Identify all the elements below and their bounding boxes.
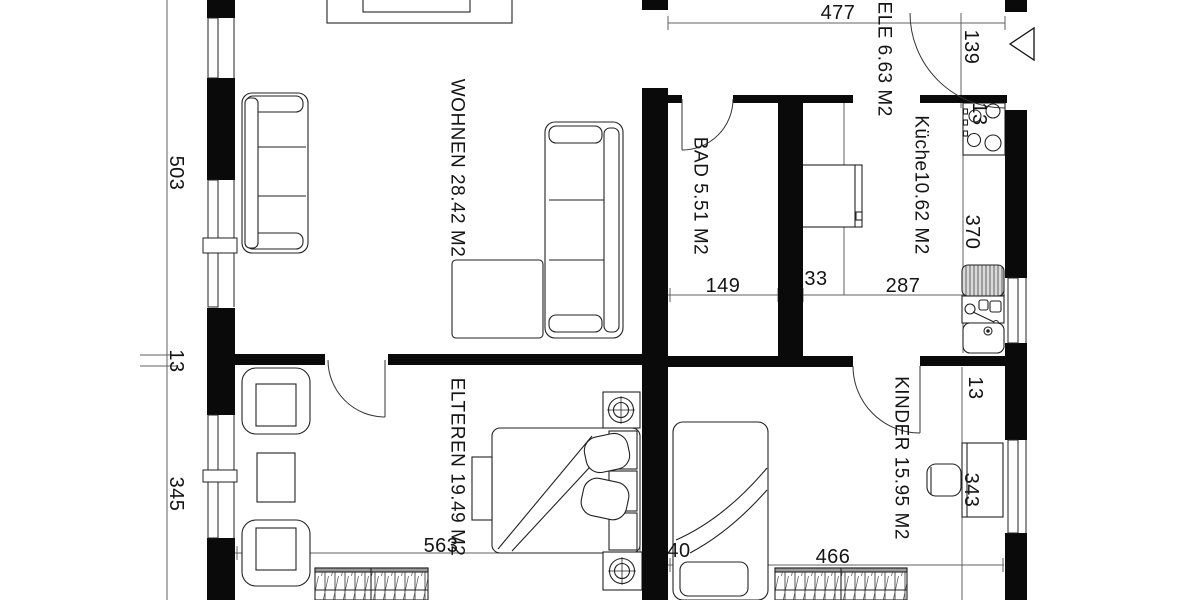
armchair-bottom xyxy=(242,520,310,586)
dim-kinder-depth: 343 xyxy=(961,473,981,508)
wall-left-1 xyxy=(207,0,235,18)
armchair-top xyxy=(242,368,310,434)
dim-left-upper: 503 xyxy=(166,156,186,191)
window-mullion-2 xyxy=(203,470,237,482)
nightstand-top xyxy=(603,392,640,428)
room-label-diele: DELE 6.63 M2 xyxy=(875,0,894,117)
window-right-kinder xyxy=(1008,440,1026,533)
coffee-table xyxy=(452,260,543,338)
wall-hall xyxy=(642,88,668,600)
dim-kinder-width: 466 xyxy=(816,547,851,567)
dim-elteren-width: 563 xyxy=(424,536,459,556)
wall-left-2 xyxy=(207,78,235,180)
wall-right-1 xyxy=(1005,0,1027,12)
nightstand-bottom xyxy=(603,552,642,590)
wall-left-4 xyxy=(207,538,235,600)
window-right-kueche xyxy=(1008,278,1026,343)
dim-kueche-depth: 370 xyxy=(962,215,982,250)
dim-entry-opening: 139 xyxy=(961,30,981,65)
kitchen-sink xyxy=(962,265,1004,353)
dim-left-wall: 13 xyxy=(166,349,186,372)
dim-kueche-width: 287 xyxy=(886,276,921,296)
dim-stove-width: 13 xyxy=(969,102,989,125)
sofa-right xyxy=(545,122,623,338)
dim-door-wall: 40 xyxy=(667,541,690,561)
wall-mid-3 xyxy=(668,356,853,367)
wardrobe-elteren xyxy=(315,568,428,600)
dim-bad-wall: 33 xyxy=(804,269,827,289)
wall-diele-1 xyxy=(733,95,853,103)
wall-bad-stub xyxy=(668,95,682,103)
bed-foot-table xyxy=(472,457,492,520)
dining-table xyxy=(327,0,512,23)
wall-mid-1 xyxy=(235,354,325,365)
room-label-bad: BAD 5.51 M2 xyxy=(691,137,710,256)
wall-bad xyxy=(778,95,803,367)
wall-hall-top xyxy=(642,0,668,10)
wall-right-3 xyxy=(1005,343,1027,440)
wall-mid-4 xyxy=(920,356,1007,366)
room-label-kueche: Küche10.62 M2 xyxy=(912,115,931,255)
room-label-wohnen: WOHNEN 28.42 M2 xyxy=(448,79,467,258)
double-bed xyxy=(492,428,640,553)
wall-right-4 xyxy=(1005,533,1027,600)
room-label-kinder: KINDER 15.95 M2 xyxy=(892,376,911,540)
side-table xyxy=(257,453,295,502)
window-left-2 xyxy=(203,180,237,307)
window-left-1 xyxy=(208,18,234,78)
dim-left-lower: 345 xyxy=(166,477,186,512)
dim-hall-width: 477 xyxy=(821,3,856,23)
wall-mid-2 xyxy=(388,354,642,365)
door-elteren xyxy=(328,360,385,417)
kitchen-cabinet xyxy=(802,165,862,227)
wall-left-3 xyxy=(207,308,235,415)
wardrobe-kinder xyxy=(775,568,907,600)
floor-plan: 503 13 345 477 139 DELE 6.63 M2 WOHNEN 2… xyxy=(0,0,1200,600)
entry-arrow-icon xyxy=(1010,28,1034,60)
window-left-3 xyxy=(203,415,237,538)
desk-chair xyxy=(927,464,961,496)
single-bed xyxy=(673,422,768,600)
door-entry xyxy=(910,13,1005,108)
dim-kinder-wall: 13 xyxy=(965,376,985,399)
wall-right-2 xyxy=(1005,110,1027,278)
window-mullion-1 xyxy=(203,238,237,253)
dim-bad-width: 149 xyxy=(706,276,741,296)
room-label-elteren: ELTEREN 19.49 M2 xyxy=(448,378,467,557)
sofa-left xyxy=(242,93,308,253)
